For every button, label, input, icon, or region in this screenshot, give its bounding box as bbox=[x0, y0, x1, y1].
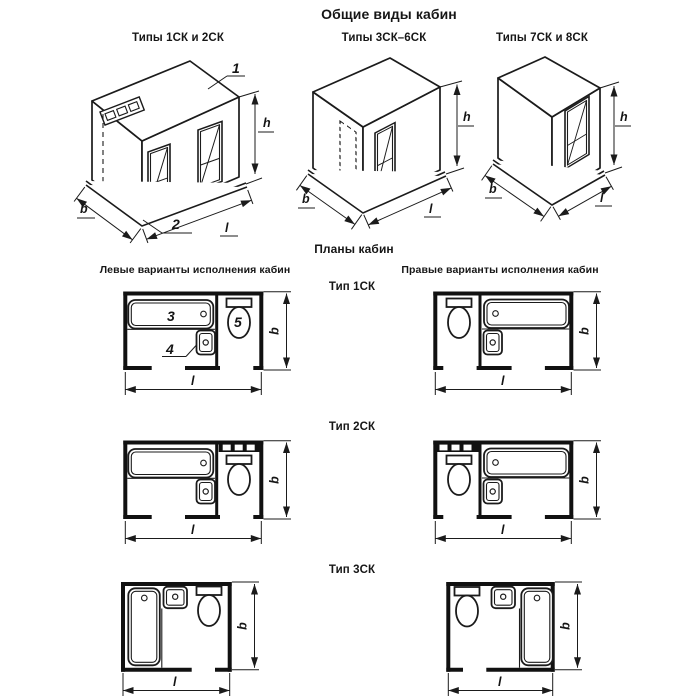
callout-washbasin: 4 bbox=[165, 341, 174, 357]
washbasin-icon bbox=[197, 480, 216, 504]
dim-label-b: b bbox=[578, 476, 592, 484]
callout-toilet: 5 bbox=[234, 314, 242, 330]
door-right-icon bbox=[198, 121, 222, 190]
callout-floor-panel: 2 bbox=[171, 216, 180, 232]
bath-icon bbox=[484, 449, 569, 478]
washbasin-icon bbox=[484, 331, 503, 355]
dim-label-l: l bbox=[429, 202, 433, 216]
dim-label-h: h bbox=[263, 116, 271, 130]
dimension-b: b bbox=[574, 292, 602, 370]
iso-view-types-7sk-8sk: h l b bbox=[466, 55, 666, 235]
dim-label-l: l bbox=[173, 675, 177, 689]
dim-label-l: l bbox=[191, 374, 195, 388]
plans-title: Планы кабин bbox=[254, 242, 454, 256]
row-label-type-3sk: Тип 3СК bbox=[302, 564, 402, 576]
dimension-l: l bbox=[125, 521, 261, 544]
dimension-l: l bbox=[435, 521, 571, 544]
callout-bath: 3 bbox=[167, 308, 175, 324]
dim-label-b: b bbox=[236, 622, 250, 630]
row-label-type-2sk: Тип 2СК bbox=[302, 421, 402, 433]
dim-label-h: h bbox=[620, 110, 628, 124]
dim-label-l: l bbox=[600, 191, 604, 205]
dimension-l: l bbox=[125, 372, 261, 395]
toilet-icon bbox=[197, 587, 222, 627]
iso-view-types-1sk-2sk: h l b 1 2 bbox=[56, 46, 296, 246]
dim-label-b: b bbox=[302, 192, 310, 206]
label-types-7sk-8sk: Типы 7СК и 8СК bbox=[442, 32, 642, 44]
toilet-icon bbox=[447, 299, 472, 339]
callout-roof-panel: 1 bbox=[232, 60, 240, 76]
dimension-b: b bbox=[555, 582, 582, 670]
toilet-icon bbox=[455, 587, 480, 627]
dimension-l: l bbox=[435, 372, 571, 395]
dim-label-l: l bbox=[191, 523, 195, 537]
dim-label-b: b bbox=[268, 476, 282, 484]
floor-slab bbox=[308, 170, 446, 213]
bath-icon bbox=[484, 300, 569, 329]
washbasin-icon bbox=[164, 587, 188, 609]
vent-grille-icon bbox=[219, 443, 262, 452]
dimension-b: b bbox=[264, 441, 292, 519]
dim-label-b: b bbox=[80, 202, 88, 216]
callout-1: 1 bbox=[208, 60, 245, 89]
dim-label-l: l bbox=[501, 374, 505, 388]
bath-icon bbox=[128, 588, 160, 665]
row-label-type-1sk: Тип 1СК bbox=[302, 281, 402, 293]
callout-washbasin-group: 4 bbox=[162, 341, 197, 357]
dimension-l: l bbox=[448, 673, 552, 696]
dim-label-b: b bbox=[559, 622, 573, 630]
plan-2sk-right: b l bbox=[410, 434, 610, 554]
dim-label-l: l bbox=[501, 523, 505, 537]
left-column-header: Левые варианты исполнения кабин bbox=[95, 264, 295, 276]
washbasin-icon bbox=[484, 480, 503, 504]
bath-icon bbox=[521, 588, 553, 665]
dimension-h: h bbox=[600, 82, 631, 173]
plan-3sk-left: b l bbox=[115, 575, 270, 700]
iso-view-types-3sk-6sk: h l b bbox=[280, 55, 480, 235]
plan-1sk-left: 3 4 5 b l bbox=[110, 285, 305, 405]
dimension-b: b bbox=[264, 292, 292, 370]
right-column-header: Правые варианты исполнения кабин bbox=[400, 264, 600, 276]
dimension-h: h bbox=[239, 91, 274, 184]
dim-label-l: l bbox=[498, 675, 502, 689]
label-types-1sk-2sk: Типы 1СК и 2СК bbox=[78, 32, 278, 44]
plan-2sk-left: b l bbox=[110, 434, 305, 554]
washbasin-icon bbox=[197, 331, 216, 355]
dimension-l: l bbox=[123, 673, 230, 696]
dim-label-b: b bbox=[268, 327, 282, 335]
plan-3sk-right: b l bbox=[418, 575, 593, 700]
floor-slab bbox=[86, 181, 247, 226]
dim-label-b: b bbox=[578, 327, 592, 335]
toilet-icon bbox=[447, 456, 472, 496]
dimension-b: b bbox=[574, 441, 602, 519]
dim-label-b: b bbox=[489, 182, 497, 196]
dimension-b: b bbox=[232, 582, 259, 670]
page-title: Общие виды кабин bbox=[289, 6, 489, 22]
washbasin-icon bbox=[492, 587, 516, 609]
drawing-sheet: Общие виды кабин Типы 1СК и 2СК Типы 3СК… bbox=[0, 0, 700, 700]
toilet-icon bbox=[227, 456, 252, 496]
plan-1sk-right: b l bbox=[410, 285, 610, 405]
dim-label-l: l bbox=[225, 221, 229, 235]
vent-grille-icon bbox=[436, 443, 479, 452]
